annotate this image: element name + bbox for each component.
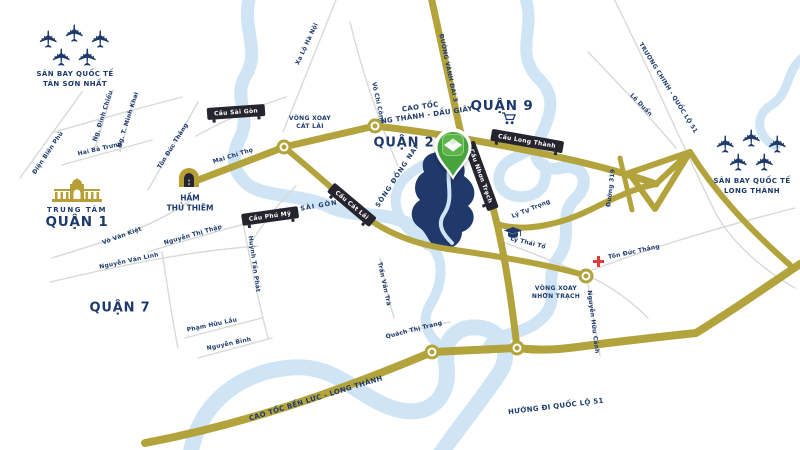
airport-label-long-thanh: SÂN BAY QUỐC TẾLONG THÀNH	[713, 176, 790, 196]
airplane-icon: ✈	[727, 152, 751, 172]
street-label: Nguyễn Bình	[206, 336, 252, 352]
airplane-icon: ✈	[63, 23, 87, 43]
bridge-badge: Cầu Phú Mỹ	[241, 206, 299, 226]
bridge-badge: Cầu Long Thành	[490, 129, 564, 153]
highway-label: HƯỚNG ĐI QUỐC LỘ 51	[508, 397, 605, 418]
street-label: Hai Bà Trưng	[77, 140, 123, 157]
street-label: Trần Văn Trà	[376, 261, 392, 306]
roundabout	[368, 119, 383, 134]
street-label: Xa Lộ Hà Nội	[294, 22, 320, 66]
airplane-icon: ✈	[50, 47, 74, 67]
ben-thanh-market-icon	[52, 176, 102, 210]
airport-label-tan-son-nhat: SÂN BAY QUỐC TẾTÂN SƠN NHẤT	[36, 69, 113, 89]
street-label: TRƯỜNG CHINH - QUỐC LỘ 51	[637, 41, 699, 134]
street-label: ĐƯỜNG VÀNH ĐAI 3	[437, 33, 458, 103]
street-label: Nguyễn Văn Linh	[99, 251, 160, 270]
graduation-cap-icon	[504, 226, 522, 245]
street-label: Mai Chí Thọ	[212, 147, 254, 166]
street-label: Tôn Đức Thắng	[608, 243, 661, 261]
shopping-cart-icon	[502, 110, 516, 129]
street-label: Ng. Đình Chiểu	[91, 90, 114, 143]
district-label-quận-7: QUẬN 7	[90, 301, 151, 316]
labels-layer: QUẬN 9QUẬN 2QUẬN 7Ng. Đình ChiểuNg. T. M…	[0, 0, 800, 450]
street-label: Nguyễn Hữu Cảnh	[586, 290, 601, 354]
roundabout-label: VÒNG XOAYCÁT LÁI	[289, 115, 331, 131]
quan1-subtitle: TRUNG TÂM	[47, 206, 107, 214]
street-label: Tôn Đức Thắng	[156, 122, 190, 170]
district-label-quận-2: QUẬN 2	[374, 136, 435, 151]
street-label: Nguyễn Thị Thập	[163, 223, 223, 246]
street-label: Lê Duẩn	[628, 92, 653, 118]
ham-thu-thiem-label: HẦM THỦ THIÊM	[167, 193, 214, 213]
roundabout	[579, 269, 594, 284]
map: QUẬN 9QUẬN 2QUẬN 7Ng. Đình ChiểuNg. T. M…	[0, 0, 800, 450]
district-label-quan-1: QUẬN 1	[45, 214, 108, 230]
river-label: SÔNG ĐỒNG NAI	[374, 143, 421, 209]
roundabout	[425, 345, 440, 360]
hospital-cross-icon	[593, 252, 604, 271]
roundabout-label: VÒNG XOAYNHƠN TRẠCH	[532, 285, 580, 301]
location-pin	[431, 124, 475, 186]
street-label: Đường 319	[605, 169, 617, 208]
bridge-badge: Cầu Sài Gòn	[207, 104, 266, 120]
highway-label: CAO TỐC BẾN LỨC - LONG THÀNH	[248, 374, 384, 423]
street-label: Phạm Hữu Lầu	[186, 316, 238, 334]
street-label: Quách Thị Trang	[385, 320, 443, 341]
roundabout	[277, 140, 292, 155]
airplane-icon: ✈	[740, 128, 764, 148]
roundabout	[510, 341, 525, 356]
airplane-icon: ✈	[753, 152, 777, 172]
street-label: Lý Tự Trọng	[511, 198, 552, 220]
airplane-icon: ✈	[76, 47, 100, 67]
street-label: Huỳnh Tấn Phát	[247, 235, 262, 292]
street-label: Điện Biên Phủ	[31, 130, 65, 175]
tunnel-icon	[177, 166, 201, 192]
